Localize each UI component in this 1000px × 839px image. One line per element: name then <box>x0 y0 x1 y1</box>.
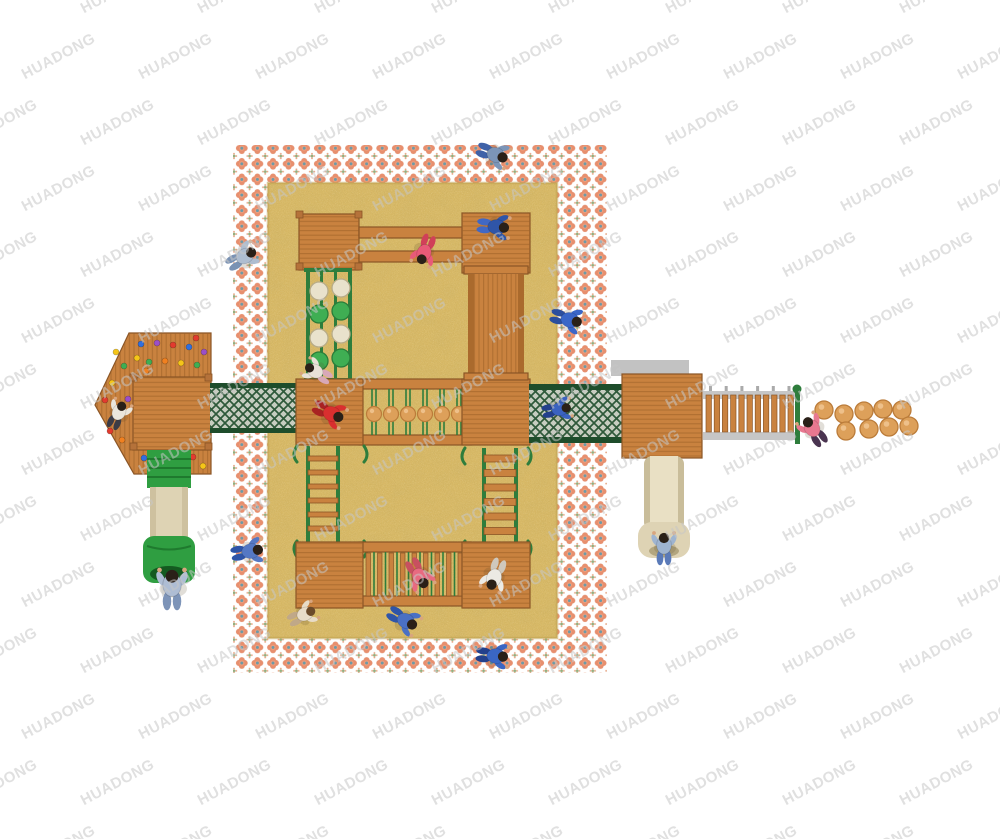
tube-slide <box>143 450 195 583</box>
net-tunnel-right <box>529 384 625 443</box>
climbing-hold <box>170 342 176 348</box>
stepping-ball <box>900 417 918 435</box>
climb-disc <box>332 325 350 343</box>
stepping-ball <box>835 405 853 423</box>
climbing-hold <box>194 362 200 368</box>
climbing-hold <box>109 380 115 386</box>
climb-disc <box>310 305 328 323</box>
platform-top-left <box>296 211 362 270</box>
post-ball <box>401 407 416 422</box>
child-figure <box>154 568 189 611</box>
plank-bridge-vertical <box>464 266 528 380</box>
stepping-ball <box>855 402 873 420</box>
climb-disc <box>310 282 328 300</box>
climb-disc <box>332 302 350 320</box>
climbing-hold <box>143 368 149 374</box>
post-ball <box>435 407 450 422</box>
wooden-plank-bridge <box>703 385 802 445</box>
scene-svg <box>0 0 1000 839</box>
playground-render: HUADONGHUADONGHUADONGHUADONGHUADONGHUADO… <box>0 0 1000 839</box>
climbing-hold <box>201 349 207 355</box>
stepping-ball <box>874 400 892 418</box>
climbing-hold <box>107 428 113 434</box>
platform-mid-right <box>462 379 530 445</box>
climbing-hold <box>186 344 192 350</box>
climbing-hold <box>162 358 168 364</box>
platform-bottom-left <box>296 542 363 608</box>
climbing-hold <box>121 363 127 369</box>
climbing-hold <box>138 341 144 347</box>
climbing-hold <box>193 335 199 341</box>
climbing-hold <box>141 455 147 461</box>
stepping-ball <box>893 401 911 419</box>
stepping-balls <box>815 400 918 440</box>
climb-disc <box>332 279 350 297</box>
climbing-hold <box>146 359 152 365</box>
climbing-hold <box>102 397 108 403</box>
climbing-hold <box>113 349 119 355</box>
net-bridge-left <box>210 383 298 433</box>
climbing-hold <box>119 437 125 443</box>
stepping-ball <box>880 418 898 436</box>
stepping-ball <box>860 420 878 438</box>
child-figure <box>650 531 678 565</box>
climb-disc <box>332 349 350 367</box>
post-ball <box>418 407 433 422</box>
climbing-hold <box>200 463 206 469</box>
climb-disc <box>310 329 328 347</box>
climbing-hold <box>154 340 160 346</box>
right-tower <box>611 360 702 458</box>
climbing-hold <box>125 396 131 402</box>
post-ball <box>367 407 382 422</box>
post-ball <box>384 407 399 422</box>
hanging-post-bridge <box>359 379 471 445</box>
stepping-ball <box>837 422 855 440</box>
climbing-hold <box>134 355 140 361</box>
climbing-hold <box>178 360 184 366</box>
